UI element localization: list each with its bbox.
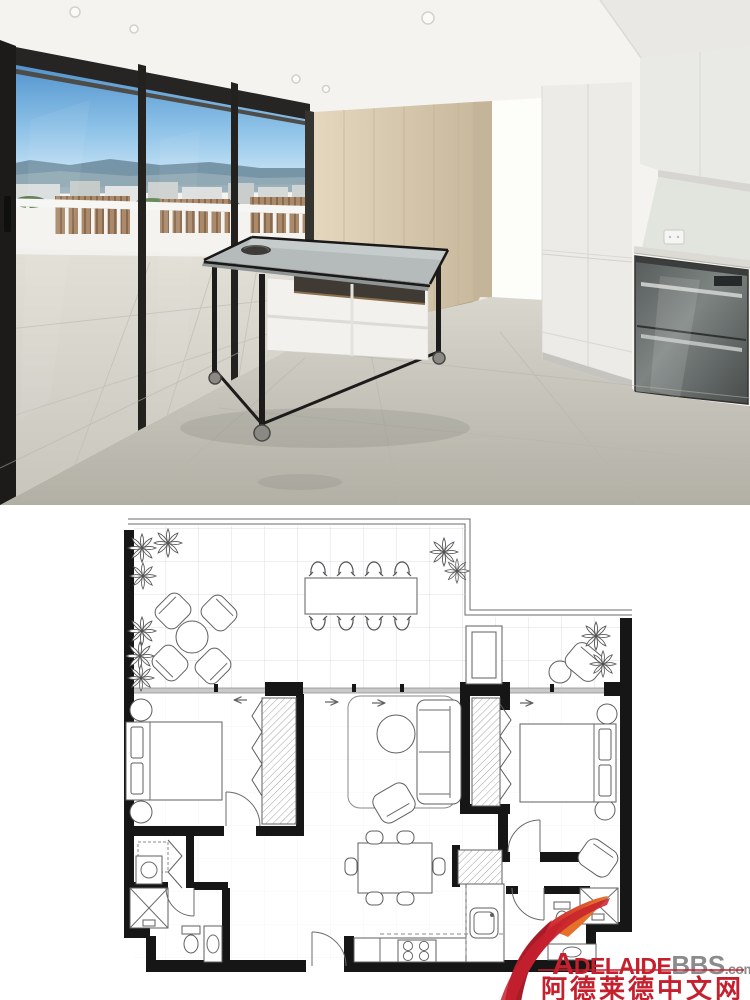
listing-image: ADELAIDEBBS.com 阿德莱德中文网 bbox=[0, 0, 750, 1000]
kitchen-sink bbox=[470, 908, 498, 938]
dishwasher-drawers bbox=[635, 256, 748, 404]
linen-cupboard bbox=[458, 850, 502, 884]
planter-box bbox=[466, 626, 502, 684]
door-handle bbox=[4, 196, 11, 232]
shower bbox=[130, 888, 168, 928]
toilet bbox=[182, 926, 200, 953]
sliding-glass-line bbox=[134, 688, 620, 693]
coffee-table bbox=[377, 715, 415, 753]
watermark-chinese-text: 阿德莱德中文网 bbox=[541, 974, 744, 1000]
splashback bbox=[642, 177, 750, 260]
vanity bbox=[204, 926, 222, 962]
sofa bbox=[417, 700, 461, 804]
bedroom-2-bed bbox=[520, 724, 616, 802]
benchtop-object bbox=[241, 245, 271, 255]
apartment-photo bbox=[0, 0, 750, 505]
pantry-cabinets bbox=[542, 82, 632, 388]
power-outlet bbox=[664, 230, 684, 244]
floor-plan: ADELAIDEBBS.com 阿德莱德中文网 bbox=[0, 505, 750, 1000]
bedroom-1-bed bbox=[126, 722, 222, 800]
cooktop bbox=[398, 940, 436, 962]
